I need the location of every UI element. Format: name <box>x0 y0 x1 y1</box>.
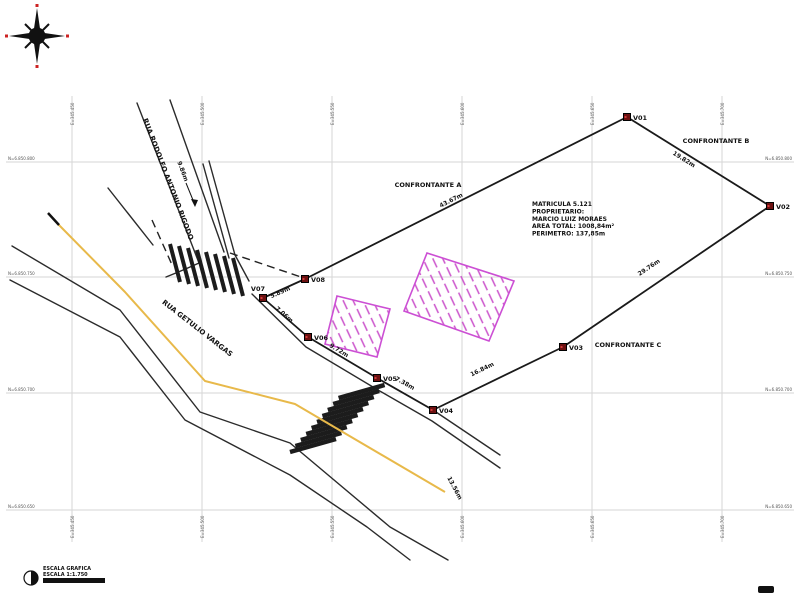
street-lines <box>10 100 500 560</box>
grid-label-right: N=6.850.650 <box>765 504 792 509</box>
grid-label-bottom: E=345.550 <box>330 515 335 538</box>
dist-v02-v03: 29.76m <box>637 258 662 278</box>
width-arrowhead <box>191 199 198 207</box>
vertex-marker-dot <box>306 336 308 338</box>
vertex-marker-dot <box>303 278 305 280</box>
grid-label-top: E=345.500 <box>200 102 205 125</box>
dist-curb: 13.56m <box>445 476 463 502</box>
legend-line2: ESCALA 1:1.750 <box>43 572 88 578</box>
coordinate-grid: E=345.450E=345.450E=345.500E=345.500E=34… <box>6 96 794 542</box>
dist-v07-v08: 5.89m <box>269 285 291 300</box>
road-centerline <box>57 223 445 492</box>
grid-label-left: N=6.850.750 <box>8 271 35 276</box>
grid-label-top: E=345.700 <box>720 102 725 125</box>
vertex-label: V07 <box>251 285 265 293</box>
centerline-start-mark <box>48 213 59 225</box>
corner-mark <box>758 586 774 593</box>
grid-label-bottom: E=345.650 <box>590 515 595 538</box>
grid-label-right: N=6.850.750 <box>765 271 792 276</box>
site-plan-drawing: E=345.450E=345.450E=345.500E=345.500E=34… <box>0 0 800 600</box>
scale-bar <box>43 578 105 583</box>
vertex-label: V08 <box>311 276 326 284</box>
street-rodolfo-edge-right <box>170 100 224 252</box>
vertex-marker-dot <box>375 377 377 379</box>
vertex-label: V02 <box>776 203 790 211</box>
grid-label-bottom: E=345.600 <box>460 515 465 538</box>
grid-label-right: N=6.850.800 <box>765 156 792 161</box>
grid-label-top: E=345.650 <box>590 102 595 125</box>
vertex-marker-dot <box>561 346 563 348</box>
site-plan-canvas: E=345.450E=345.450E=345.500E=345.500E=34… <box>0 0 800 600</box>
grid-label-bottom: E=345.500 <box>200 515 205 538</box>
street-rodolfo-median-2 <box>209 161 249 281</box>
getulio-sw-curb-1 <box>12 246 448 560</box>
grid-label-top: E=345.450 <box>70 102 75 125</box>
width-rodolfo: 9.86m <box>175 160 189 182</box>
grid-label-top: E=345.600 <box>460 102 465 125</box>
vertex-label: V01 <box>633 114 648 122</box>
property-info-block: MATRICULA 5.121PROPRIETARIO:MARCIO LUIZ … <box>532 201 614 238</box>
building-large <box>404 253 514 341</box>
grid-label-left: N=6.850.700 <box>8 387 35 392</box>
boundary-extension <box>433 410 500 455</box>
street-name-getulio: RUA GETULIO VARGAS <box>160 298 234 358</box>
vertex-label: V06 <box>314 334 329 342</box>
property-info-line: MARCIO LUIZ MORAES <box>532 216 607 223</box>
dist-v03-v04: 16.84m <box>469 361 495 378</box>
buildings <box>325 253 514 357</box>
grid-label-left: N=6.850.800 <box>8 156 35 161</box>
vertex-label: V04 <box>439 407 454 415</box>
vertex-label: V03 <box>569 344 583 352</box>
street-corner-line <box>108 188 153 245</box>
property-info-line: PERIMETRO: 137,85m <box>532 231 605 238</box>
crosswalk-getulio <box>290 385 385 452</box>
confrontante-a: CONFRONTANTE A <box>395 181 462 189</box>
property-info-line: PROPRIETARIO: <box>532 208 584 215</box>
grid-label-top: E=345.550 <box>330 102 335 125</box>
north-compass-rose-icon <box>5 4 69 68</box>
grid-label-right: N=6.850.700 <box>765 387 792 392</box>
confrontante-c: CONFRONTANTE C <box>595 341 662 349</box>
scale-legend: ESCALA GRAFICA ESCALA 1:1.750 <box>24 566 105 585</box>
vertex-marker-dot <box>431 409 433 411</box>
confrontante-b: CONFRONTANTE B <box>683 137 750 145</box>
street-rodolfo-median-1 <box>203 164 229 258</box>
property-info-line: MATRICULA 5.121 <box>532 201 592 208</box>
crosswalk-rodolfo <box>170 244 243 296</box>
grid-label-bottom: E=345.450 <box>70 515 75 538</box>
dashed-line-1 <box>152 220 173 267</box>
dist-v06-v07: 7.06m <box>274 305 294 324</box>
grid-label-left: N=6.850.650 <box>8 504 35 509</box>
property-info-line: AREA TOTAL: 1008,84m² <box>532 223 614 230</box>
grid-label-bottom: E=345.700 <box>720 515 725 538</box>
vertex-marker-dot <box>768 205 770 207</box>
vertex-marker-dot <box>625 116 627 118</box>
vertex-marker-dot <box>261 297 263 299</box>
